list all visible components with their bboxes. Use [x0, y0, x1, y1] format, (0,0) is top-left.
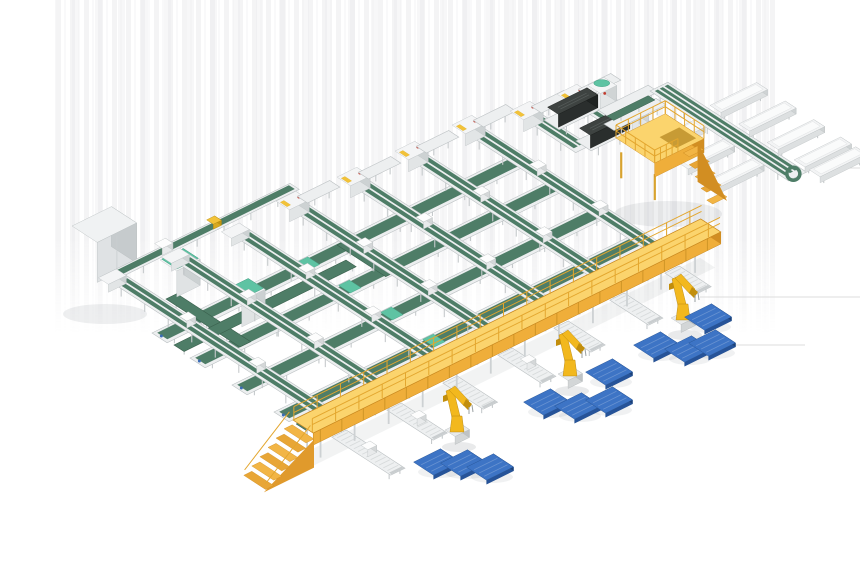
scene-svg	[0, 0, 860, 580]
factory-render	[0, 0, 860, 580]
